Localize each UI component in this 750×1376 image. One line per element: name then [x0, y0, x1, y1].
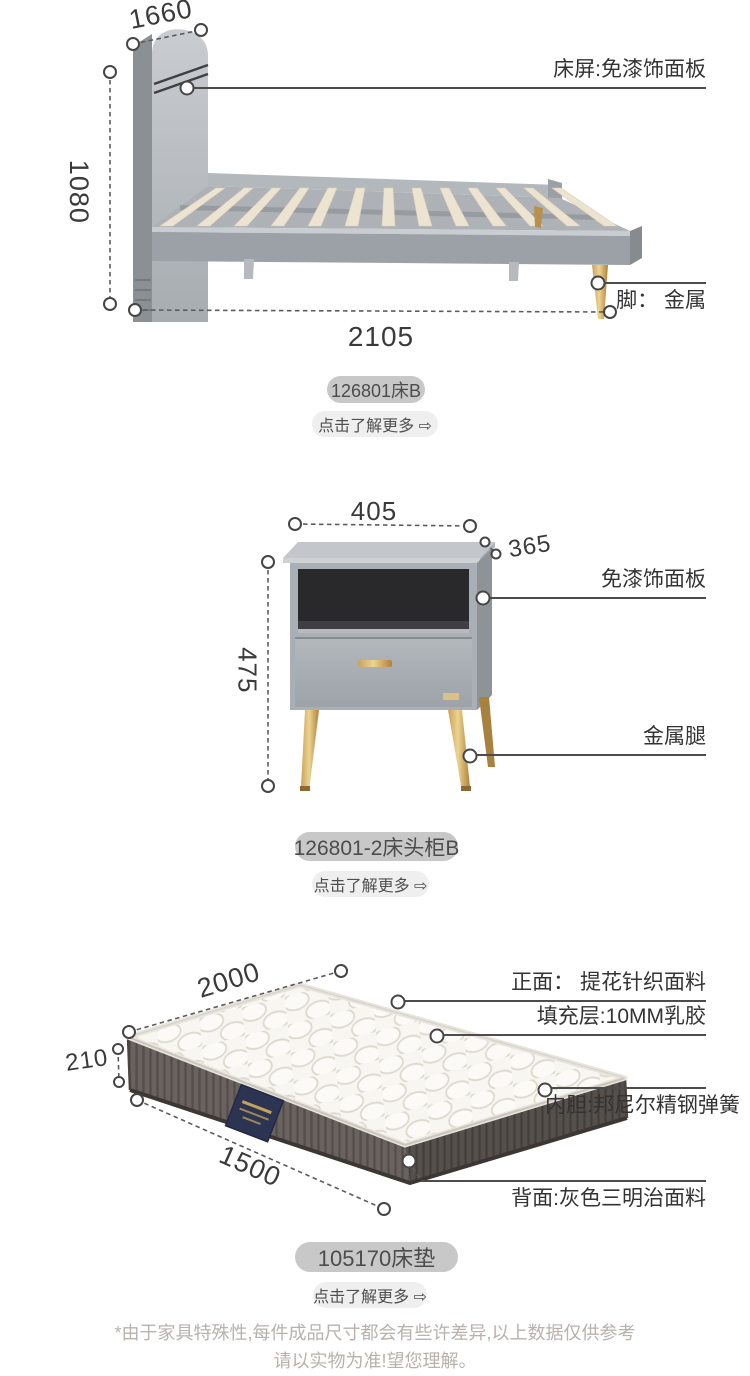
nightstand-panel-note: 免漆饰面板: [483, 567, 706, 599]
mattress-back-note: 背面:灰色三明治面料: [421, 1180, 706, 1212]
bed-length-dimension: 2105: [330, 322, 432, 353]
product-dimension-page: 1660 1080 床屏:免漆饰面板 脚： 金属 2105 126801床B 点…: [0, 0, 750, 1376]
mattress-core-anchor-dot: [538, 1083, 553, 1098]
nightstand-body: [290, 548, 492, 710]
bed-length-dimension-line: [128, 301, 620, 321]
bed-model-badge: 126801床B: [327, 376, 425, 403]
nightstand-logo-plate: [443, 693, 459, 700]
nightstand-legs-anchor-dot: [463, 749, 478, 764]
nightstand-depth-dimension: 365: [502, 530, 557, 564]
mattress-model-badge: 105170床垫: [295, 1242, 458, 1272]
mattress-filling-anchor-dot: [430, 1029, 445, 1044]
nightstand-depth-dimension-line: [477, 534, 505, 562]
nightstand-illustration: [265, 535, 500, 805]
nightstand-panel-anchor-dot: [476, 591, 491, 606]
disclaimer-line-1: *由于家具特殊性,每件成品尺寸都会有些许差异,以上数据仅供参考: [0, 1322, 750, 1344]
bed-learn-more-button[interactable]: 点击了解更多 ⇨: [312, 411, 438, 437]
bed-height-dimension: 1080: [63, 157, 93, 227]
mattress-learn-more-button[interactable]: 点击了解更多 ⇨: [313, 1282, 427, 1308]
nightstand-model-badge: 126801-2床头柜B: [295, 832, 458, 861]
bed-panel-note: 床屏:免漆饰面板: [187, 57, 706, 89]
nightstand-open-shelf: [298, 569, 469, 629]
mattress-filling-note: 填充层:10MM乳胶: [437, 1004, 706, 1036]
mattress-back-anchor-dot: [402, 1154, 417, 1169]
bed-panel-anchor-dot: [180, 81, 195, 96]
nightstand-height-dimension-line: [260, 554, 276, 795]
mattress-core-note: 内胆:邦尼尔精钢弹簧: [545, 1087, 706, 1119]
nightstand-drawer-handle: [358, 660, 392, 667]
mattress-front-anchor-dot: [391, 995, 406, 1010]
nightstand-learn-more-button[interactable]: 点击了解更多 ⇨: [312, 871, 429, 897]
nightstand-top: [283, 542, 495, 563]
bed-height-dimension-line: [102, 64, 118, 312]
nightstand-height-dimension: 475: [233, 635, 262, 705]
bed-front-rail: [152, 226, 642, 265]
mattress-front-note: 正面： 提花针织面料: [398, 970, 706, 1002]
nightstand-legs-note: 金属腿: [470, 724, 706, 756]
bed-feet-anchor-dot: [591, 276, 606, 291]
nightstand-width-dimension-line: [287, 516, 479, 534]
nightstand-legs: [300, 697, 495, 791]
disclaimer-line-2: 请以实物为准!望您理解。: [0, 1350, 750, 1372]
